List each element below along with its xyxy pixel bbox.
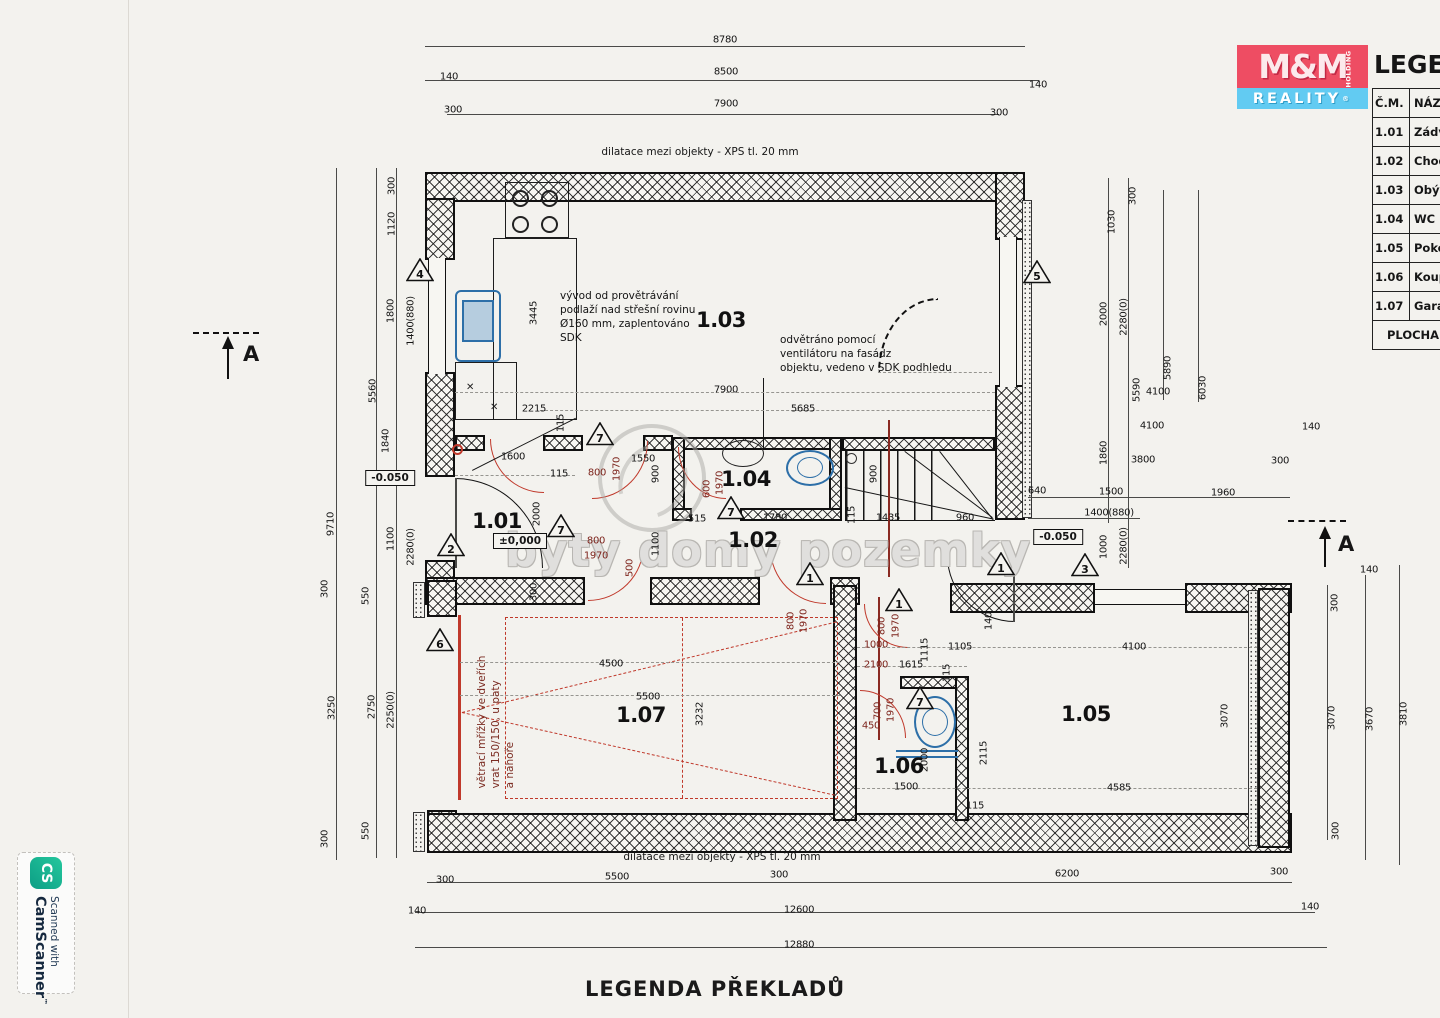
svg-text:6: 6 — [436, 638, 444, 651]
dilatation-note-top: dilatace mezi objekty - XPS tl. 20 mm — [601, 146, 798, 158]
insulation-strip — [1022, 200, 1032, 518]
svg-text:1: 1 — [806, 572, 814, 585]
dim-label: 115 — [556, 414, 567, 432]
camscanner-line2: CamScanner™ — [32, 896, 49, 1005]
camscanner-icon: CS — [30, 857, 62, 889]
grid-line — [396, 600, 397, 858]
dim-label: 3070 — [1220, 704, 1231, 728]
dim-label: 12600 — [784, 905, 814, 916]
dim-label: 600 — [702, 480, 713, 498]
legend-room-name: Chodba — [1410, 154, 1440, 168]
dim-label: 900 — [869, 465, 880, 483]
dim-label: 2280(0) — [406, 528, 417, 566]
dim-label: 1800 — [386, 299, 397, 323]
dim-label: 2000 — [532, 502, 543, 526]
dim-label: 1970 — [612, 457, 623, 481]
section-line — [1288, 520, 1346, 522]
insulation-strip — [413, 812, 425, 852]
legend-row: 1.07Garáž — [1373, 292, 1440, 321]
triangle-marker: 2 — [437, 533, 465, 561]
legend-room-name: Garáž — [1410, 299, 1440, 313]
dim-label: 4100 — [1122, 642, 1146, 653]
grid-line — [415, 912, 1315, 913]
note-vent-fan: odvětráno pomocíventilátoru na fasádzobj… — [780, 334, 952, 376]
room-label: 1.07 — [616, 703, 666, 727]
mm-reality-bar: REALITY® — [1237, 88, 1368, 109]
dim-label: 140 — [408, 906, 426, 917]
stove-burner — [512, 190, 529, 207]
camscanner-text: Scanned with CamScanner™ — [32, 896, 61, 1005]
legend-room-name: WC — [1410, 212, 1435, 226]
partition — [543, 435, 583, 451]
dim-label: 4100 — [1140, 421, 1164, 432]
dim-label: 300 — [320, 580, 331, 598]
garage-door-face — [458, 615, 461, 800]
dim-label: 550 — [361, 822, 372, 840]
triangle-marker: 3 — [1071, 553, 1099, 581]
wall-segment — [425, 198, 455, 260]
grid-line — [415, 947, 1327, 948]
legend-room-number: 1.01 — [1373, 125, 1409, 139]
insulation-strip — [1248, 590, 1258, 846]
room-label: 1.06 — [874, 754, 924, 778]
svg-text:3: 3 — [1081, 563, 1089, 576]
dim-label: 300 — [990, 108, 1008, 119]
dim-label: 8500 — [714, 67, 738, 78]
garage-door-centerline — [682, 618, 683, 798]
dim-label: 515 — [688, 514, 706, 525]
dim-label: 2280(0) — [1119, 527, 1130, 565]
legend-room-number: 1.07 — [1373, 299, 1409, 313]
legend-footer: PLOCHA — [1383, 328, 1439, 342]
dim-label: 640 — [1028, 486, 1046, 497]
triangle-marker: 6 — [426, 628, 454, 656]
dim-label: 2280(0) — [1119, 298, 1130, 336]
triangle-marker: 7 — [586, 422, 614, 450]
legend-row: 1.04WC — [1373, 205, 1440, 234]
grid-line — [1198, 190, 1199, 402]
legend-room-name: Koupelna — [1410, 270, 1440, 284]
svg-text:2: 2 — [447, 543, 455, 556]
svg-text:7: 7 — [596, 432, 604, 445]
legend-table: Č.M. NÁZEV 1.01Zádveří1.02Chodba1.03Obýv… — [1372, 88, 1440, 350]
dim-label: 900 — [651, 465, 662, 483]
camscanner-line1: Scanned with — [48, 896, 60, 1005]
grid-line — [447, 114, 999, 115]
dim-label: 12880 — [784, 940, 814, 951]
red-point-marker — [452, 444, 463, 455]
elevation-badge: -0.050 — [365, 470, 415, 486]
wall-segment — [995, 172, 1025, 240]
legend-col1-header: Č.M. — [1373, 96, 1409, 110]
dim-label: 1970 — [799, 609, 810, 633]
insulation-strip — [413, 582, 425, 618]
stair-risers — [846, 451, 946, 521]
note-leader — [763, 378, 764, 448]
dim-label: 300 — [444, 105, 462, 116]
dim-label: 1115 — [920, 638, 931, 662]
dim-label: 300 — [320, 830, 331, 848]
dim-label: 700 — [873, 702, 884, 720]
dim-label: 300 — [436, 875, 454, 886]
dim-label: 1435 — [876, 513, 900, 524]
dim-label: 140 — [440, 72, 458, 83]
elevation-badge: ±0,000 — [493, 533, 547, 549]
room-label: 1.04 — [721, 467, 771, 491]
registered-mark: ® — [1342, 95, 1352, 103]
bath-wall — [955, 676, 969, 821]
dim-label: 3250 — [327, 696, 338, 720]
stair-post — [846, 453, 857, 464]
room-label: 1.03 — [696, 308, 746, 332]
mm-reality-logo: M&M HOLDING — [1237, 45, 1368, 88]
triangle-marker: 7 — [906, 686, 934, 714]
grid-line — [425, 80, 1039, 81]
dim-label: 4100 — [1146, 387, 1170, 398]
dim-label: 1500 — [1099, 487, 1123, 498]
dim-label: 1105 — [948, 642, 972, 653]
legend-room-name: Zádveří — [1410, 125, 1440, 139]
dim-label: 1960 — [1211, 488, 1235, 499]
triangle-marker: 1 — [987, 552, 1015, 580]
dim-label: 4585 — [1107, 783, 1131, 794]
legend-room-number: 1.03 — [1373, 183, 1409, 197]
dim-label: 3445 — [529, 301, 540, 325]
wall-bottom — [427, 813, 1292, 853]
grid-line — [540, 410, 995, 411]
dim-label: 3070 — [1327, 706, 1338, 730]
dim-label: 8780 — [713, 35, 737, 46]
svg-text:7: 7 — [557, 524, 565, 537]
legend-row: 1.06Koupelna — [1373, 263, 1440, 292]
dim-label: 800 — [877, 617, 888, 635]
wall-segment — [995, 385, 1025, 520]
dim-label: 9710 — [326, 512, 337, 536]
stove-burner — [541, 190, 558, 207]
wall-segment — [650, 577, 760, 605]
legend-row: 1.02Chodba — [1373, 147, 1440, 176]
dim-label: 6200 — [1055, 869, 1079, 880]
dim-label: 550 — [361, 587, 372, 605]
dim-label: 2000 — [1099, 302, 1110, 326]
dim-label: 450 — [862, 721, 880, 732]
dim-label: 140 — [1360, 565, 1378, 576]
dim-label: 115 — [966, 801, 984, 812]
svg-text:7: 7 — [727, 506, 735, 519]
room-label: 1.01 — [472, 509, 522, 533]
legend-room-number: 1.05 — [1373, 241, 1409, 255]
dim-label: 3670 — [1365, 707, 1376, 731]
dim-label: 140 — [1301, 902, 1319, 913]
triangle-marker: 1 — [796, 562, 824, 590]
room-label: 1.05 — [1061, 702, 1111, 726]
note-vent-roof: vývod od provětrávánípodlaží nad střešní… — [560, 290, 695, 345]
elevation-badge: -0.050 — [1033, 529, 1083, 545]
dim-label: 1970 — [891, 614, 902, 638]
legend-room-name: Pokoj — [1410, 241, 1440, 255]
dim-label: 1100 — [386, 527, 397, 551]
triangle-marker: 4 — [406, 258, 434, 286]
legend-row: 1.01Zádveří — [1373, 118, 1440, 147]
mm-logo-text: M&M — [1258, 47, 1346, 86]
dim-label: 140 — [1029, 80, 1047, 91]
dim-label: 3800 — [1131, 455, 1155, 466]
dim-label: 800 — [588, 468, 606, 479]
wall-right — [1258, 588, 1290, 848]
camscanner-badge: CS Scanned with CamScanner™ — [17, 852, 75, 994]
mm-reality-text: REALITY — [1253, 91, 1341, 107]
dim-label: 2750 — [367, 695, 378, 719]
mm-holding-text: HOLDING — [1344, 50, 1352, 87]
dim-label: 960 — [956, 513, 974, 524]
kitchen-cabinet — [455, 362, 517, 420]
dim-label: 115 — [550, 469, 568, 480]
dim-label: 300 — [1270, 867, 1288, 878]
dim-label: 2115 — [979, 741, 990, 765]
dim-label: 2250(0) — [386, 691, 397, 729]
grid-line — [1028, 497, 1290, 498]
dim-label: 5685 — [791, 404, 815, 415]
dim-label: 1100 — [651, 532, 662, 556]
dim-label: 300 — [1128, 187, 1139, 205]
grid-line — [376, 600, 377, 858]
svg-text:1: 1 — [997, 562, 1005, 575]
dim-label: 1600 — [501, 452, 525, 463]
grid-line — [427, 882, 1292, 883]
cabinet-mark: ✕ — [490, 402, 498, 413]
dim-label: 1840 — [381, 429, 392, 453]
camscanner-inner: CS Scanned with CamScanner™ — [23, 857, 69, 989]
room-label: 1.02 — [728, 528, 778, 552]
dim-label: 1860 — [1099, 441, 1110, 465]
wall-segment — [425, 372, 455, 477]
dim-label: 4500 — [599, 659, 623, 670]
section-stem — [227, 347, 229, 379]
garage-door-zone — [505, 617, 838, 799]
dim-label: 2215 — [522, 404, 546, 415]
svg-text:5: 5 — [1033, 270, 1041, 283]
dim-label: 5560 — [368, 379, 379, 403]
legend-footer-row: PLOCHA — [1373, 321, 1440, 350]
bottom-title: LEGENDA PŘEKLADŮ — [585, 977, 845, 1001]
dim-label: 1400(880) — [1084, 508, 1134, 519]
wc-wall — [740, 508, 842, 521]
window-lower-block — [1095, 589, 1185, 605]
dim-label: 1120 — [387, 212, 398, 236]
triangle-marker: 5 — [1023, 260, 1051, 288]
svg-text:7: 7 — [916, 696, 924, 709]
dim-label: 1030 — [1107, 210, 1118, 234]
legend-room-number: 1.04 — [1373, 212, 1409, 226]
dim-label: 800 — [786, 612, 797, 630]
svg-text:1: 1 — [895, 598, 903, 611]
dilatation-note-bottom: dilatace mezi objekty - XPS tl. 20 mm — [623, 851, 820, 863]
grid-line — [425, 46, 1025, 47]
dim-label: 3232 — [695, 702, 706, 726]
triangle-marker: 7 — [547, 514, 575, 542]
dim-label: 300 — [387, 177, 398, 195]
dim-label: 1780 — [763, 513, 787, 524]
dim-label: 1400(880) — [406, 296, 417, 346]
dim-label: 300 — [1331, 822, 1342, 840]
section-stem — [1324, 537, 1326, 567]
dim-label: 5500 — [636, 692, 660, 703]
dim-label: 1970 — [584, 551, 608, 562]
dim-label: 7900 — [714, 99, 738, 110]
dim-label: 3810 — [1399, 702, 1410, 726]
section-line — [193, 332, 259, 334]
triangle-marker: 1 — [885, 588, 913, 616]
dim-label: 1970 — [886, 698, 897, 722]
dim-label: 115 — [942, 664, 953, 682]
section-label: A — [1338, 532, 1354, 556]
legend-row: 1.05Pokoj — [1373, 234, 1440, 263]
dim-label: 5500 — [605, 872, 629, 883]
dim-label: 300 — [1271, 456, 1289, 467]
wc-toilet-bowl — [797, 457, 823, 478]
legend-row: 1.03Obývací — [1373, 176, 1440, 205]
wc-sink — [722, 440, 764, 467]
legend-room-number: 1.02 — [1373, 154, 1409, 168]
triangle-marker: 7 — [717, 496, 745, 524]
dim-label: 5890 — [1163, 356, 1174, 380]
legend-room-name: Obývací — [1410, 183, 1440, 197]
legend-header-row: Č.M. NÁZEV — [1373, 89, 1440, 118]
stair-wall — [842, 437, 995, 451]
dim-label: 300 — [770, 870, 788, 881]
wall-segment — [427, 580, 457, 617]
note-garage-grille: větrací mřížky ve dveříchvrat 150/150, u… — [476, 656, 518, 789]
dim-label: 800 — [587, 536, 605, 547]
dim-label: 1550 — [631, 454, 655, 465]
section-label: A — [243, 342, 259, 366]
stove-burner — [541, 216, 558, 233]
dim-label: 1500 — [894, 782, 918, 793]
dim-label: 140 — [1302, 422, 1320, 433]
dim-label: 1000 — [864, 640, 888, 651]
dim-label: 300 — [529, 583, 540, 601]
kitchen-sink-basin — [462, 300, 494, 342]
window-right — [999, 237, 1017, 387]
dim-label: 5590 — [1132, 378, 1143, 402]
legend-title: LEGENDA — [1374, 50, 1440, 79]
legend-col2-header: NÁZEV — [1410, 96, 1440, 110]
svg-text:4: 4 — [416, 268, 424, 281]
dim-label: 6030 — [1198, 376, 1209, 400]
dim-label: 7900 — [714, 385, 738, 396]
dim-label: 2100 — [864, 660, 888, 671]
dim-label: 115 — [847, 506, 858, 524]
legend-room-number: 1.06 — [1373, 270, 1409, 284]
dim-label: 1000 — [1099, 535, 1110, 559]
grid-line — [857, 647, 1257, 648]
floor-plan-page: ✕ ✕ A A byty domy pozemky dilatace mezi … — [0, 0, 1440, 1018]
stove-burner — [512, 216, 529, 233]
dim-label: 140 — [984, 612, 995, 630]
dim-label: 500 — [625, 559, 636, 577]
scan-fold-line — [128, 0, 129, 1018]
dim-label: 300 — [1330, 594, 1341, 612]
